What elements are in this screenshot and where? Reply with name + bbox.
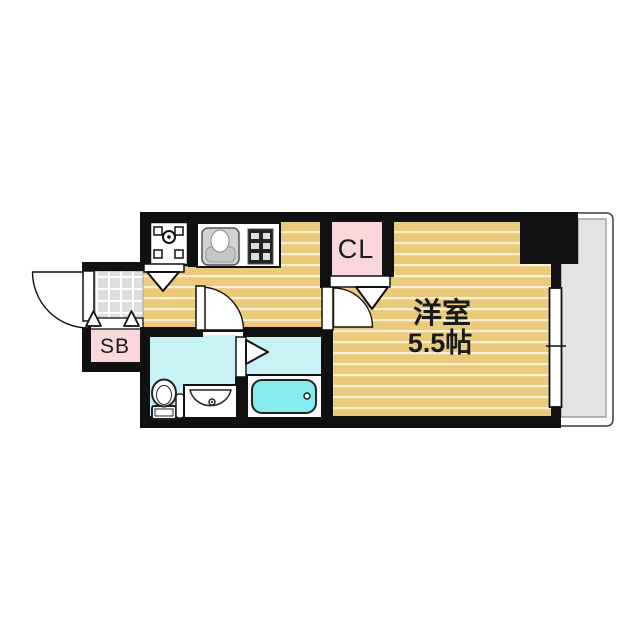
wall-entrance-top (82, 262, 150, 271)
floorplan-page: CL SB 洋室 5.5帖 (0, 0, 640, 640)
vanity-sink-icon (184, 385, 237, 418)
wall-window-top-stub (551, 264, 561, 288)
bathtub-icon (247, 375, 322, 418)
entrance-door-swing-icon (33, 271, 95, 328)
kitchen-counter (197, 223, 280, 267)
floor-entrance-tile (95, 271, 143, 318)
wall-washroom-left (140, 327, 150, 428)
shoebox-label: SB (100, 335, 130, 358)
wall-shoebox-bottom (82, 362, 150, 372)
stove-icon (248, 229, 273, 264)
wall-bath-top (243, 327, 322, 337)
closet-label: CL (338, 234, 375, 264)
kitchen-sink-icon (202, 228, 239, 265)
wall-window-bottom-stub (551, 407, 561, 428)
wall-top (140, 212, 578, 222)
wall-pillar (520, 212, 578, 264)
main-room-name: 洋室 (413, 296, 471, 330)
floorplan-svg: CL SB 洋室 5.5帖 (0, 0, 640, 640)
washing-machine-icon (150, 222, 188, 265)
wall-closet-right (382, 212, 394, 277)
main-room-size: 5.5帖 (408, 328, 473, 358)
